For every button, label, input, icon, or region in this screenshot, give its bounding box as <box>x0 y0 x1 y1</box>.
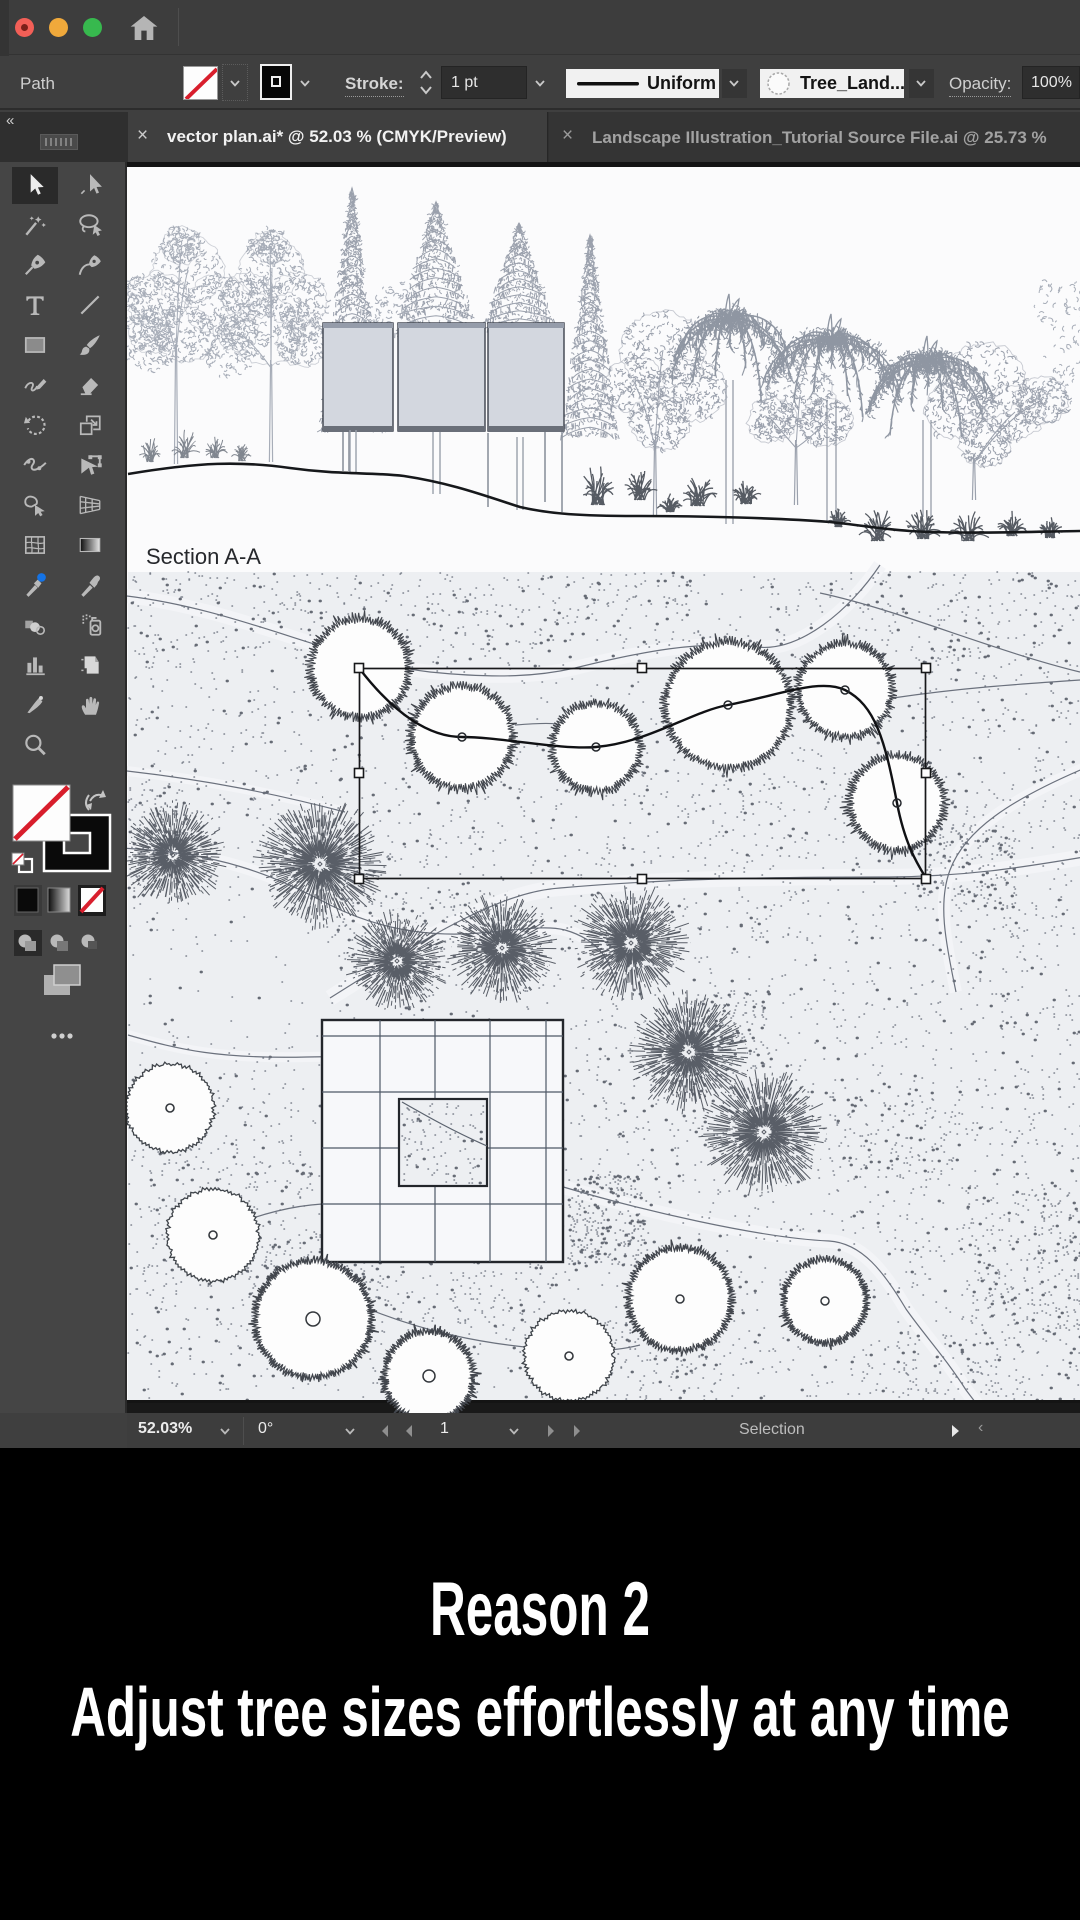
svg-text:Section A-A: Section A-A <box>146 544 261 569</box>
